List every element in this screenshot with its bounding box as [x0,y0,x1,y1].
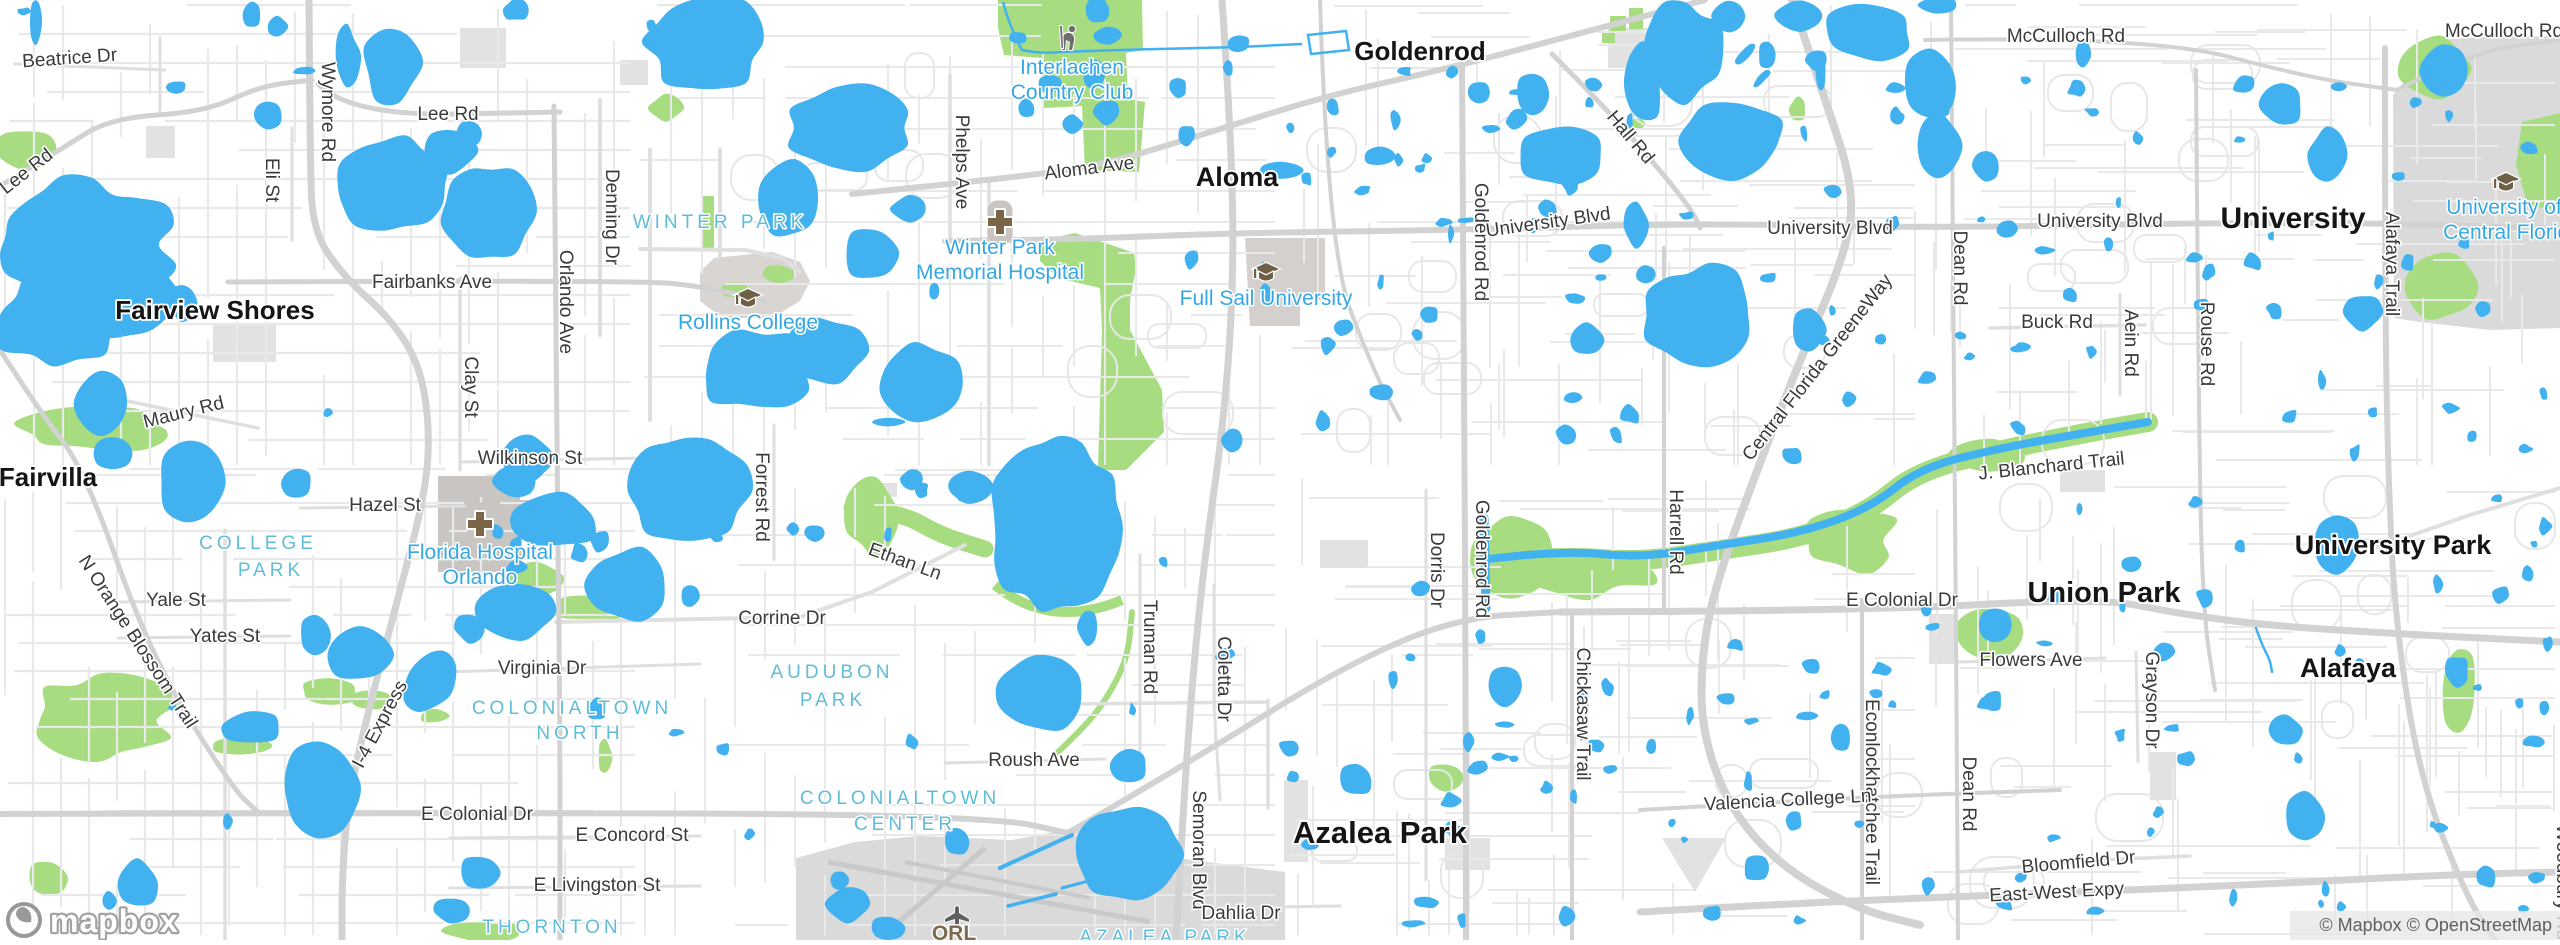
svg-text:E Livingston St: E Livingston St [534,875,661,896]
svg-text:Goldenrod Rd: Goldenrod Rd [1470,183,1491,301]
svg-text:AUDUBON: AUDUBON [770,662,893,683]
svg-text:E Concord St: E Concord St [576,825,690,846]
svg-text:WINTER PARK: WINTER PARK [633,212,808,233]
svg-text:Truman Rd: Truman Rd [1139,600,1160,694]
svg-text:Goldenrod Rd: Goldenrod Rd [1471,500,1492,618]
svg-text:Goldenrod: Goldenrod [1354,36,1485,66]
svg-text:Rouse Rd: Rouse Rd [2196,302,2217,387]
svg-text:© Mapbox © OpenStreetMap: © Mapbox © OpenStreetMap [2319,915,2552,935]
svg-text:Buck Rd: Buck Rd [2021,312,2093,333]
svg-text:Rollins College: Rollins College [678,311,818,334]
svg-text:Wymore Rd: Wymore Rd [317,62,338,162]
svg-text:Chickasaw Trail: Chickasaw Trail [1572,647,1593,780]
svg-text:University Park: University Park [2295,530,2493,560]
svg-text:University Blvd: University Blvd [2037,211,2163,232]
svg-text:E Colonial Dr: E Colonial Dr [1846,590,1959,611]
svg-text:Fairview Shores: Fairview Shores [115,295,314,325]
svg-text:Yale St: Yale St [146,590,207,611]
svg-text:Aein Rd: Aein Rd [2120,309,2141,377]
svg-text:mapbox: mapbox [50,903,179,939]
svg-text:Union Park: Union Park [2027,577,2181,609]
svg-text:Winter Park: Winter Park [945,236,1055,259]
svg-text:Country Club: Country Club [1011,81,1134,104]
svg-text:University Blvd: University Blvd [1767,218,1893,239]
svg-text:COLONIALTOWN: COLONIALTOWN [800,788,1000,809]
svg-text:COLONIALTOWN: COLONIALTOWN [472,698,672,719]
svg-text:COLLEGE: COLLEGE [199,533,317,554]
svg-text:Wilkinson St: Wilkinson St [478,448,583,469]
svg-text:E Colonial Dr: E Colonial Dr [421,804,534,825]
svg-text:Full Sail University: Full Sail University [1180,287,1353,310]
svg-text:PARK: PARK [238,560,304,581]
svg-text:AZALEA PARK: AZALEA PARK [1079,927,1250,940]
svg-text:Dean Rd: Dean Rd [1958,757,1979,832]
svg-text:Aloma: Aloma [1196,162,1280,192]
svg-text:University: University [2220,202,2365,235]
svg-text:Fairvilla: Fairvilla [0,462,98,492]
svg-text:Fairbanks Ave: Fairbanks Ave [372,272,492,293]
svg-text:Denning Dr: Denning Dr [601,169,622,266]
svg-text:Clay St: Clay St [460,356,481,418]
svg-text:Roush Ave: Roush Ave [988,750,1080,771]
svg-text:Hazel St: Hazel St [349,495,422,516]
svg-text:Grayson Dr: Grayson Dr [2141,651,2162,749]
svg-text:Alafaya: Alafaya [2300,653,2397,683]
svg-text:Forrest Rd: Forrest Rd [751,452,772,542]
svg-text:Lee Rd: Lee Rd [417,104,478,125]
svg-text:Orlando Ave: Orlando Ave [555,250,576,354]
svg-text:Interlachen: Interlachen [1020,56,1124,79]
svg-text:Orlando: Orlando [443,566,518,589]
svg-text:Florida Hospital: Florida Hospital [407,541,553,564]
svg-text:THORNTON: THORNTON [482,917,621,938]
svg-text:Azalea Park: Azalea Park [1293,815,1468,850]
svg-text:Eli St: Eli St [261,158,282,203]
svg-text:Virginia Dr: Virginia Dr [498,658,587,679]
svg-text:Dorris Dr: Dorris Dr [1426,532,1447,609]
svg-text:Dahlia Dr: Dahlia Dr [1201,903,1281,924]
svg-text:Memorial Hospital: Memorial Hospital [916,261,1084,284]
svg-text:PARK: PARK [800,690,866,711]
svg-text:ORL: ORL [932,922,977,940]
svg-text:CENTER: CENTER [854,814,956,835]
svg-text:Central Florida: Central Florida [2443,221,2560,244]
svg-text:Alafaya Trail: Alafaya Trail [2381,212,2402,317]
svg-text:NORTH: NORTH [536,723,623,744]
svg-text:Yates St: Yates St [190,626,261,647]
svg-text:University of: University of [2446,196,2560,219]
svg-text:McCulloch Rd: McCulloch Rd [2007,26,2125,47]
svg-text:Corrine Dr: Corrine Dr [738,608,826,629]
svg-text:Phelps Ave: Phelps Ave [951,115,972,210]
svg-text:Harrell Rd: Harrell Rd [1665,489,1686,575]
svg-text:McCulloch Rd: McCulloch Rd [2445,21,2560,42]
svg-text:Flowers Ave: Flowers Ave [1979,650,2082,671]
svg-text:Dean Rd: Dean Rd [1949,231,1970,306]
svg-text:Semoran Blvd: Semoran Blvd [1188,790,1209,909]
svg-text:Coletta Dr: Coletta Dr [1213,636,1234,722]
